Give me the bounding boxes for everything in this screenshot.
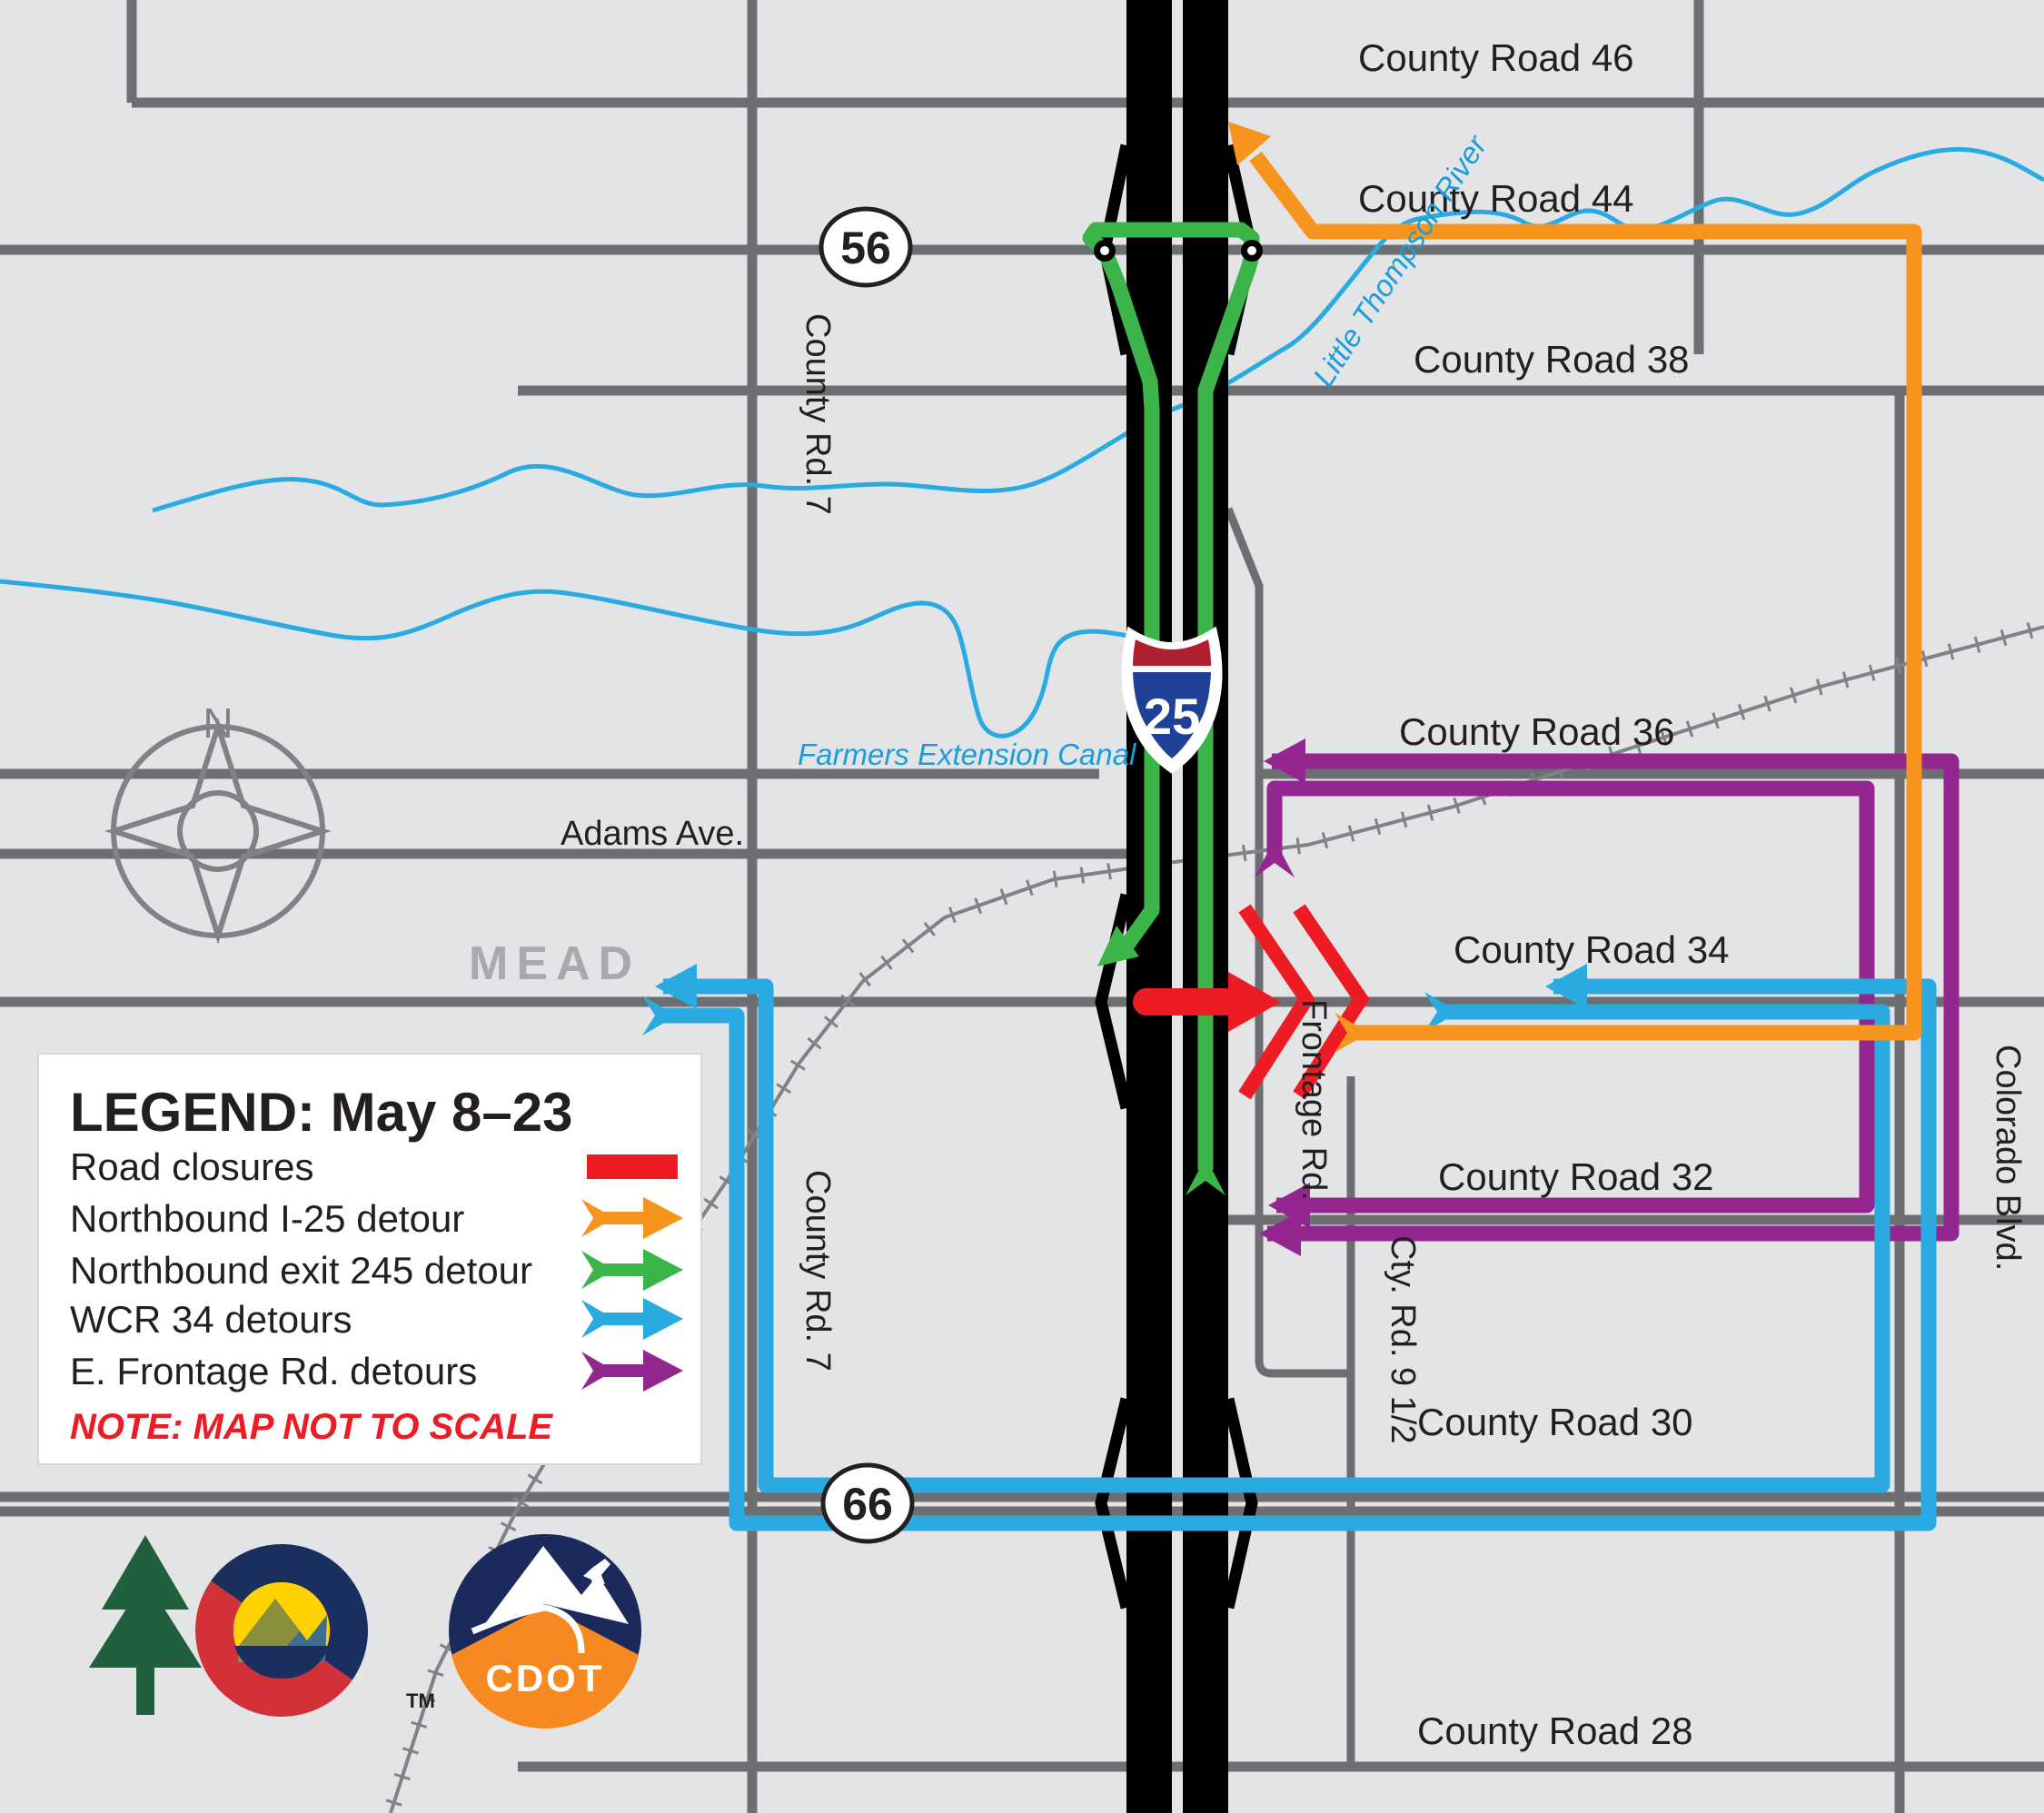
legend-item-road-closures: Road closures <box>70 1145 313 1188</box>
label-county-road-46: County Road 46 <box>1358 36 1634 79</box>
compass-north: N <box>203 699 233 747</box>
legend: LEGEND: May 8–23 Road closures Northboun… <box>38 1054 701 1464</box>
label-cty-rd-9-half: Cty. Rd. 9 1/2 <box>1384 1235 1422 1444</box>
detour-map: 56 66 25 County Road 46 County Road 44 C… <box>0 0 2044 1813</box>
ramp-dot-east-center <box>1247 246 1256 255</box>
cdot-wordmark: CDOT <box>486 1657 605 1699</box>
shield-56: 56 <box>821 209 910 285</box>
legend-item-wcr-34-detours: WCR 34 detours <box>70 1298 352 1341</box>
label-county-road-32: County Road 32 <box>1438 1155 1714 1198</box>
shield-66-number: 66 <box>842 1479 893 1530</box>
label-county-rd-7-south: County Rd. 7 <box>799 1170 837 1372</box>
cdot-logo: CDOT <box>449 1534 641 1729</box>
label-mead: MEAD <box>469 937 640 990</box>
label-county-road-28: County Road 28 <box>1417 1709 1693 1752</box>
label-county-road-30: County Road 30 <box>1417 1401 1693 1443</box>
label-county-road-34: County Road 34 <box>1454 928 1730 971</box>
map-background <box>0 0 2044 1813</box>
label-county-road-44: County Road 44 <box>1358 177 1634 220</box>
colorado-tm: TM <box>406 1689 435 1712</box>
legend-note: NOTE: MAP NOT TO SCALE <box>70 1407 553 1447</box>
legend-item-frontage-detours: E. Frontage Rd. detours <box>70 1350 477 1392</box>
label-county-road-36: County Road 36 <box>1399 710 1675 753</box>
shield-56-number: 56 <box>840 223 891 273</box>
label-colorado-blvd: Colorado Blvd. <box>1989 1045 2027 1271</box>
i25-shield-number: 25 <box>1144 688 1200 745</box>
label-adams-ave: Adams Ave. <box>561 815 744 853</box>
shield-66: 66 <box>823 1465 912 1541</box>
legend-item-nb-i25-detour: Northbound I-25 detour <box>70 1197 464 1240</box>
label-farmers-extension-canal: Farmers Extension Canal <box>798 738 1137 771</box>
label-county-rd-7-north: County Rd. 7 <box>799 313 837 515</box>
legend-symbol-closure <box>587 1154 678 1179</box>
label-frontage-rd: Frontage Rd. <box>1295 999 1333 1201</box>
label-county-road-38: County Road 38 <box>1414 338 1690 381</box>
legend-title: LEGEND: May 8–23 <box>70 1082 573 1143</box>
legend-item-nb-exit-245-detour: Northbound exit 245 detour <box>70 1249 532 1292</box>
ramp-dot-west-center <box>1100 246 1109 255</box>
